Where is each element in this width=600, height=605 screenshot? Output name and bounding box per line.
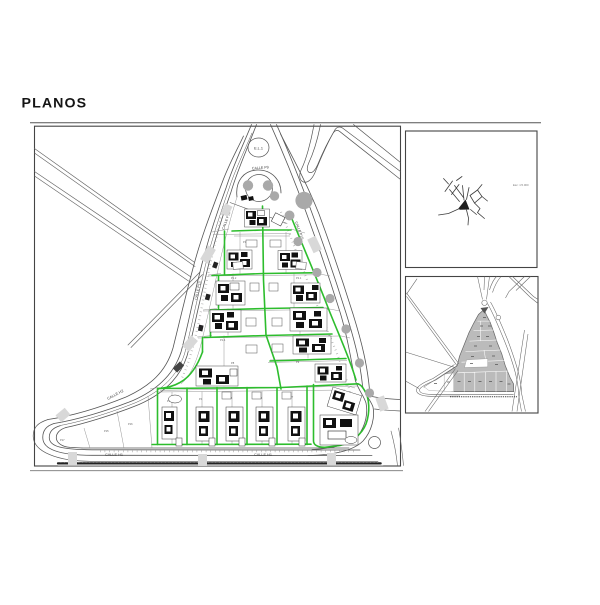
- svg-text:PLANOS: PLANOS: [22, 96, 88, 112]
- svg-text:P1.4: P1.4: [220, 338, 226, 342]
- svg-text:P16: P16: [128, 422, 133, 426]
- svg-text:P15: P15: [104, 429, 109, 433]
- svg-text:Esc: 1:5.000: Esc: 1:5.000: [513, 183, 529, 187]
- svg-text:P8: P8: [231, 361, 235, 365]
- svg-text:P2.1: P2.1: [296, 276, 302, 280]
- svg-text:CALLE H1: CALLE H1: [254, 453, 272, 457]
- svg-text:P17: P17: [60, 438, 65, 442]
- svg-text:P1.2: P1.2: [231, 276, 237, 280]
- svg-text:P9: P9: [296, 360, 300, 364]
- svg-text:E.L.1: E.L.1: [254, 147, 263, 151]
- svg-text:CALLE H1: CALLE H1: [105, 453, 123, 457]
- svg-text:P4: P4: [199, 397, 203, 401]
